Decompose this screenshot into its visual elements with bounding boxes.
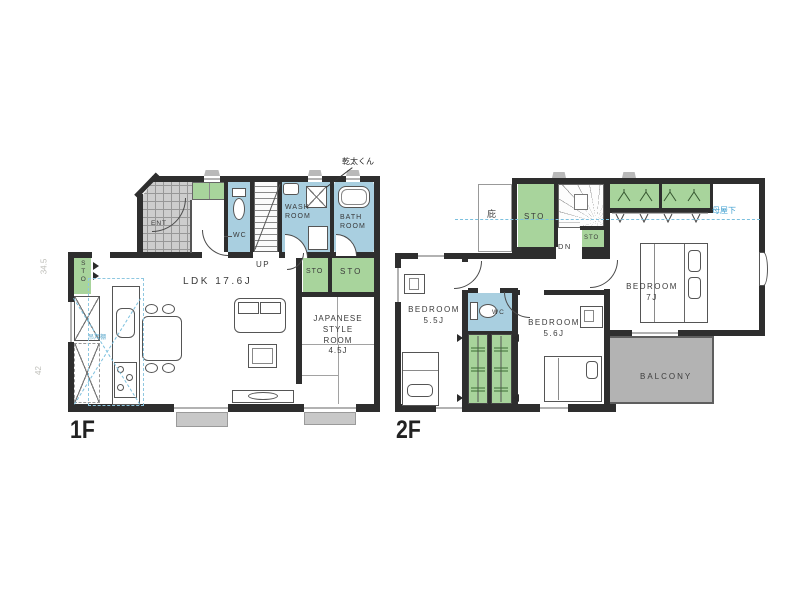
bathroom-line2: ROOM bbox=[340, 222, 366, 231]
japanese-line4: 4.5J bbox=[300, 346, 376, 357]
chair-icon bbox=[145, 363, 158, 373]
room-label-bathroom: BATH ROOM bbox=[340, 213, 366, 232]
window bbox=[395, 268, 401, 302]
chair-icon bbox=[145, 304, 158, 314]
room-label-japanese: JAPANESE STYLE ROOM 4.5J bbox=[300, 314, 376, 357]
balcony-label: BALCONY bbox=[640, 372, 692, 383]
bed bbox=[402, 352, 439, 406]
stairs-landing bbox=[574, 194, 588, 210]
floor-label-1f: 1F bbox=[70, 416, 95, 445]
floor-plan-canvas: LDK 17.6J UP ENT WC WASH ROOM BATH ROOM … bbox=[0, 0, 800, 600]
floor-label-2f: 2F bbox=[396, 416, 421, 445]
window bbox=[308, 176, 322, 182]
bedroom7-line1: BEDROOM bbox=[622, 282, 682, 293]
entrance-step-line bbox=[190, 200, 192, 253]
pillow-icon bbox=[688, 250, 701, 272]
stair-opening bbox=[556, 253, 582, 259]
folding-door-mark bbox=[457, 394, 463, 402]
room-label-bedroom56: BEDROOM 5.6J bbox=[520, 318, 588, 340]
folding-door-mark bbox=[513, 394, 519, 402]
japanese-line2: STYLE bbox=[300, 325, 376, 336]
window bbox=[346, 176, 360, 182]
blanket-line bbox=[558, 358, 559, 400]
room-label-wc2: WC bbox=[492, 309, 505, 318]
wall bbox=[512, 178, 517, 253]
porch-step bbox=[176, 412, 228, 427]
wall bbox=[300, 292, 380, 297]
bedroom55-door-arc bbox=[454, 261, 482, 289]
margin-annotation: 34.5 bbox=[39, 259, 48, 275]
tatami-line bbox=[302, 375, 338, 376]
wall bbox=[604, 184, 610, 410]
wall bbox=[512, 178, 765, 184]
washroom-line1: WASH bbox=[285, 203, 311, 212]
room-label-washroom: WASH ROOM bbox=[285, 203, 311, 222]
chair-icon bbox=[162, 304, 175, 314]
japanese-line3: ROOM bbox=[300, 336, 376, 347]
gas-dryer-note: 乾太くん bbox=[342, 156, 374, 167]
window bbox=[304, 404, 356, 412]
shoe-storage-divider bbox=[209, 183, 210, 199]
ridge-dashed-line bbox=[455, 219, 760, 220]
storage-label: STO bbox=[78, 260, 87, 284]
chair-icon bbox=[162, 363, 175, 373]
folding-door-mark bbox=[457, 334, 463, 342]
tv-icon bbox=[248, 392, 278, 400]
wall bbox=[250, 178, 254, 254]
window bbox=[436, 404, 462, 412]
blanket-line bbox=[403, 370, 438, 371]
wall bbox=[330, 178, 334, 254]
coffee-table-inner bbox=[252, 348, 273, 364]
window bbox=[540, 404, 568, 412]
bedroom55-line1: BEDROOM bbox=[402, 305, 466, 316]
toilet-tank-icon bbox=[232, 188, 246, 197]
ridge-note: 母屋下 bbox=[712, 205, 736, 216]
stairs-up-label: UP bbox=[256, 260, 270, 271]
folding-door-mark bbox=[513, 334, 519, 342]
storage-label: STO bbox=[340, 267, 362, 278]
stairs-down-label: DN bbox=[558, 242, 572, 252]
kitchen-cabinet-note: 吊戸棚 bbox=[88, 332, 106, 341]
wall bbox=[580, 226, 606, 230]
japanese-line1: JAPANESE bbox=[300, 314, 376, 325]
washroom-line2: ROOM bbox=[285, 212, 311, 221]
balcony bbox=[606, 336, 714, 404]
bathroom-line1: BATH bbox=[340, 213, 366, 222]
sofa-cushion bbox=[238, 302, 259, 314]
room-label-bedroom7: BEDROOM 7J bbox=[622, 282, 682, 304]
wall bbox=[604, 330, 765, 336]
door-opening bbox=[478, 288, 500, 293]
bedroom56-line1: BEDROOM bbox=[520, 318, 588, 329]
toilet-bowl-icon bbox=[233, 198, 245, 220]
stair-opening bbox=[253, 252, 279, 258]
wc-leader-line bbox=[224, 236, 232, 237]
wall bbox=[328, 258, 332, 292]
headboard-line bbox=[684, 244, 685, 322]
desk-chair bbox=[409, 278, 419, 290]
pillow-icon bbox=[688, 277, 701, 299]
toilet-tank-icon bbox=[470, 302, 478, 320]
storage-label: STO bbox=[524, 212, 545, 223]
window bbox=[418, 253, 444, 259]
room-label-bedroom55: BEDROOM 5.5J bbox=[402, 305, 466, 327]
closet-rail-marks bbox=[612, 212, 708, 224]
margin-annotation: 42 bbox=[34, 366, 43, 375]
bathtub-inner bbox=[341, 189, 367, 205]
wall bbox=[137, 194, 143, 256]
window bbox=[204, 176, 220, 182]
hanger-icons bbox=[612, 186, 708, 206]
storage-label: STO bbox=[306, 267, 323, 276]
wash-sink-icon bbox=[283, 183, 299, 195]
hanging-cabinet-outline bbox=[88, 278, 144, 406]
pillow-icon bbox=[407, 384, 433, 397]
folding-door-mark bbox=[93, 262, 99, 270]
closet-hanger-pipe bbox=[491, 334, 512, 404]
bedroom7-line2: 7J bbox=[622, 293, 682, 304]
sofa-cushion bbox=[260, 302, 281, 314]
window bbox=[632, 330, 678, 336]
storage-label: STO bbox=[584, 234, 599, 242]
porch-step bbox=[304, 412, 356, 425]
pillow-icon bbox=[586, 361, 598, 379]
eaves-label: 庇 bbox=[487, 208, 496, 220]
room-label-ldk: LDK 17.6J bbox=[183, 275, 252, 289]
room-label-wc: WC bbox=[233, 231, 247, 240]
bay-window-icon bbox=[759, 252, 768, 286]
door-opening bbox=[92, 252, 110, 258]
room-label-entrance: ENT bbox=[151, 220, 167, 229]
washing-machine-icon bbox=[308, 226, 328, 250]
dining-table bbox=[142, 316, 182, 361]
window bbox=[174, 404, 228, 412]
closet-hanger-pipe bbox=[468, 334, 488, 404]
bedroom7-door-arc bbox=[590, 260, 618, 288]
bedroom55-line2: 5.5J bbox=[402, 316, 466, 327]
bedroom56-line2: 5.6J bbox=[520, 329, 588, 340]
